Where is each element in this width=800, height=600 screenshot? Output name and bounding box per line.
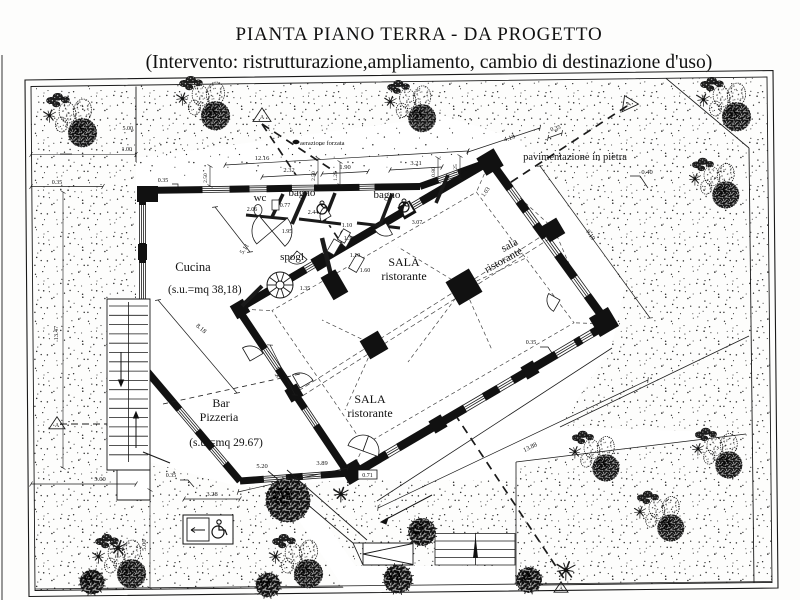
svg-text:5.00: 5.00	[141, 539, 148, 550]
svg-text:ristorante: ristorante	[381, 269, 426, 283]
svg-text:5.00: 5.00	[123, 126, 134, 132]
svg-text:0.77: 0.77	[280, 203, 291, 209]
svg-text:0.80: 0.80	[431, 167, 437, 177]
svg-text:aerazione forzata: aerazione forzata	[300, 140, 345, 147]
svg-text:bagno: bagno	[374, 189, 401, 201]
svg-text:0.40: 0.40	[641, 169, 652, 176]
svg-text:0.35: 0.35	[158, 178, 169, 184]
svg-text:pavimentazione in pietra: pavimentazione in pietra	[523, 152, 627, 163]
svg-text:bagno: bagno	[289, 187, 316, 199]
svg-text:1.25: 1.25	[453, 164, 459, 174]
svg-text:13.47: 13.47	[53, 325, 60, 340]
svg-text:Bar: Bar	[212, 396, 229, 410]
svg-text:3.28: 3.28	[206, 491, 217, 498]
svg-text:1.10: 1.10	[342, 223, 353, 229]
svg-text:1.95: 1.95	[282, 229, 293, 235]
svg-text:2.06: 2.06	[247, 207, 258, 213]
svg-text:5.00: 5.00	[94, 476, 105, 483]
svg-text:(Intervento: ristrutturazione,: (Intervento: ristrutturazione,ampliament…	[146, 52, 713, 73]
svg-text:SALA: SALA	[354, 392, 386, 406]
svg-text:PIANTA PIANO TERRA - DA PROGET: PIANTA PIANO TERRA - DA PROGETTO	[236, 24, 603, 45]
svg-text:wc: wc	[254, 192, 267, 204]
svg-text:0.35: 0.35	[166, 473, 177, 479]
svg-text:ristorante: ristorante	[347, 406, 392, 420]
svg-text:2.50: 2.50	[203, 173, 209, 183]
svg-text:1.30: 1.30	[344, 236, 355, 242]
svg-text:3.89: 3.89	[316, 460, 327, 467]
svg-text:0.35: 0.35	[526, 340, 537, 346]
svg-text:1.00: 1.00	[122, 147, 133, 153]
svg-text:(s.u.=mq 29.67): (s.u.=mq 29.67)	[189, 437, 263, 449]
svg-text:12.16: 12.16	[255, 155, 270, 162]
svg-text:5.20: 5.20	[256, 463, 267, 470]
svg-text:3.07: 3.07	[412, 220, 423, 226]
svg-text:2.32: 2.32	[283, 167, 294, 174]
svg-text:0.71: 0.71	[362, 473, 373, 479]
svg-text:Pizzeria: Pizzeria	[200, 410, 239, 424]
svg-text:1.35: 1.35	[300, 286, 311, 292]
svg-text:SALA: SALA	[388, 255, 420, 269]
svg-text:1.60: 1.60	[360, 268, 371, 274]
svg-text:1.90: 1.90	[339, 164, 350, 171]
svg-text:0.35: 0.35	[52, 180, 63, 186]
svg-text:1.10: 1.10	[350, 253, 361, 259]
svg-text:spogl: spogl	[280, 251, 304, 263]
svg-text:1.25: 1.25	[333, 171, 339, 181]
svg-text:A: A	[260, 115, 265, 121]
svg-text:2.44: 2.44	[308, 210, 319, 216]
svg-text:(s.u.=mq 38,18): (s.u.=mq 38,18)	[168, 284, 242, 296]
svg-text:3.21: 3.21	[410, 160, 421, 167]
svg-text:A: A	[55, 423, 60, 429]
svg-text:A: A	[559, 586, 564, 592]
svg-text:2.50: 2.50	[311, 171, 317, 181]
svg-text:Cucina: Cucina	[175, 260, 211, 274]
